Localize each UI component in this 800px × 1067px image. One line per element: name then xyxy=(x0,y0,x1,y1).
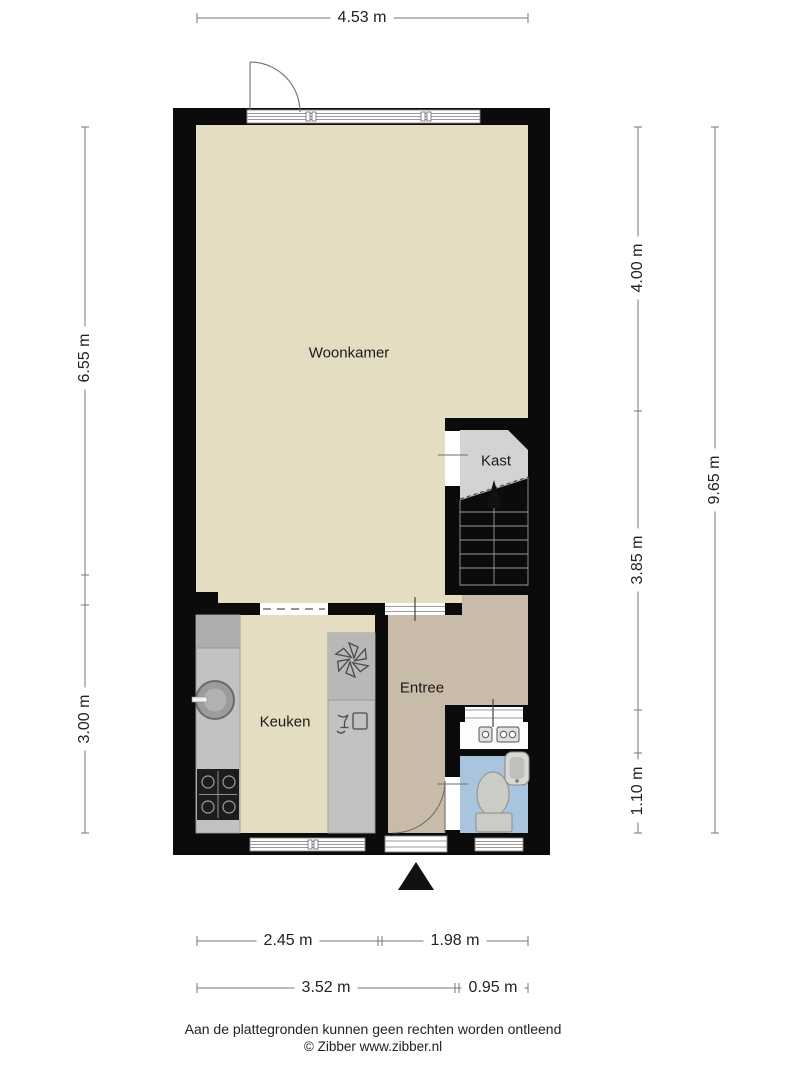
wc-meterkast-block xyxy=(437,699,529,833)
meter-icon xyxy=(479,727,519,742)
room-label-kast: Kast xyxy=(481,453,511,470)
room-label-woonkamer: Woonkamer xyxy=(309,345,390,362)
floorplan-drawing xyxy=(0,0,800,1067)
disclaimer-text: Aan de plattegronden kunnen geen rechten… xyxy=(185,1020,562,1038)
wc-door-opening xyxy=(445,777,460,830)
kast-stairs-block xyxy=(438,418,528,595)
stove-icon xyxy=(197,769,239,820)
window-bottom-left xyxy=(250,838,365,851)
dim-top: 4.53 m xyxy=(331,8,394,28)
entree-floor-notch xyxy=(462,595,528,615)
dim-left-lower: 3.00 m xyxy=(75,688,95,751)
dim-bottom-outer-left: 3.52 m xyxy=(295,978,358,998)
garden-door xyxy=(250,62,300,112)
room-label-keuken: Keuken xyxy=(260,714,311,731)
dim-right-lower: 1.10 m xyxy=(628,760,648,823)
woonkamer-keuken-opening xyxy=(260,603,328,615)
meterkast-door-opening xyxy=(465,707,523,722)
floorplan-page: Woonkamer Kast Keuken Entree 4.53 m 6.55… xyxy=(0,0,800,1067)
dim-bottom-inner-right: 1.98 m xyxy=(424,931,487,951)
copyright-text: © Zibber www.zibber.nl xyxy=(185,1038,562,1055)
washbasin-icon xyxy=(505,752,529,785)
dim-right-upper: 4.00 m xyxy=(628,237,648,300)
dim-right-total: 9.65 m xyxy=(705,449,725,512)
room-label-entree: Entree xyxy=(400,680,444,697)
window-wc xyxy=(475,838,523,851)
entrance-arrow-icon xyxy=(398,862,434,890)
dim-bottom-outer-right: 0.95 m xyxy=(462,978,525,998)
window-top xyxy=(247,110,480,123)
kitchen-counter-right xyxy=(328,633,375,833)
dim-bottom-inner-left: 2.45 m xyxy=(257,931,320,951)
dim-right-middle: 3.85 m xyxy=(628,529,648,592)
wall-stub xyxy=(196,592,218,603)
footer: Aan de plattegronden kunnen geen rechten… xyxy=(185,1020,562,1055)
dim-left-upper: 6.55 m xyxy=(75,327,95,390)
kast-door-opening xyxy=(445,431,460,486)
kitchen-counter-left xyxy=(192,615,240,833)
